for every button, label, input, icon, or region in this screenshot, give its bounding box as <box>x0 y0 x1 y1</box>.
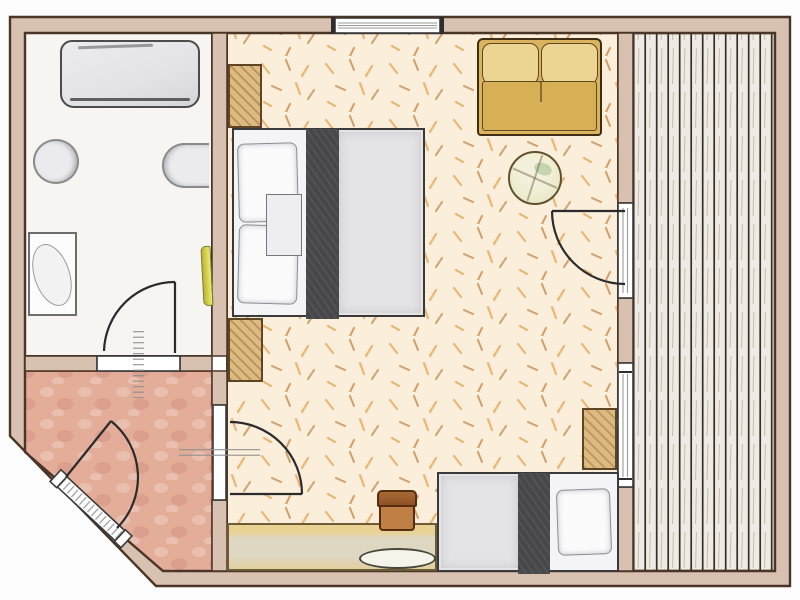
wardrobe-lower <box>228 318 263 382</box>
wall-sink <box>162 143 209 188</box>
wall-bathroom-hall-left <box>25 356 97 371</box>
wall-bedroom-balcony-upper <box>618 33 633 203</box>
top-window <box>331 17 444 34</box>
desk-chair-backrest <box>377 490 417 507</box>
sofa <box>477 38 602 136</box>
double-bed-runner <box>306 129 339 319</box>
wall-hall-bedroom-lower <box>212 500 227 571</box>
bathtub-rim-line <box>78 44 153 50</box>
sofa-seat <box>482 81 597 131</box>
single-bed-pillow <box>556 488 612 556</box>
desk-chair-seat <box>379 507 415 531</box>
double-bed-center-shelf <box>266 194 302 256</box>
single-bed-runner <box>518 473 550 574</box>
wardrobe-upper <box>228 64 262 128</box>
single-bed <box>437 472 619 572</box>
wall-bathroom-hall-right <box>180 356 212 371</box>
vanity-washbasin <box>28 232 77 316</box>
desk-oval-tray <box>359 548 436 569</box>
washbasin-bowl <box>25 239 79 311</box>
nightstand <box>582 408 617 470</box>
toilet <box>33 139 79 184</box>
sofa-seat-split <box>540 82 542 102</box>
single-bed-head-section <box>550 474 617 570</box>
balcony-decking <box>633 33 775 571</box>
table-sketch-line-2 <box>527 155 543 201</box>
double-bed <box>232 128 425 317</box>
wall-bathroom-bedroom <box>212 33 227 356</box>
wall-bedroom-balcony-lower <box>618 487 633 571</box>
floor-plan-canvas: Floor plan of a hotel room: bathroom at … <box>0 0 800 600</box>
round-side-table <box>508 151 562 205</box>
double-bed-duvet <box>339 132 421 313</box>
single-bed-duvet <box>441 476 518 568</box>
wall-bedroom-balcony-middle <box>618 298 633 363</box>
bathtub <box>60 40 200 108</box>
bathtub-edge-line <box>70 98 190 101</box>
balcony-window <box>618 363 633 487</box>
wall-hall-bedroom-upper <box>212 371 227 405</box>
